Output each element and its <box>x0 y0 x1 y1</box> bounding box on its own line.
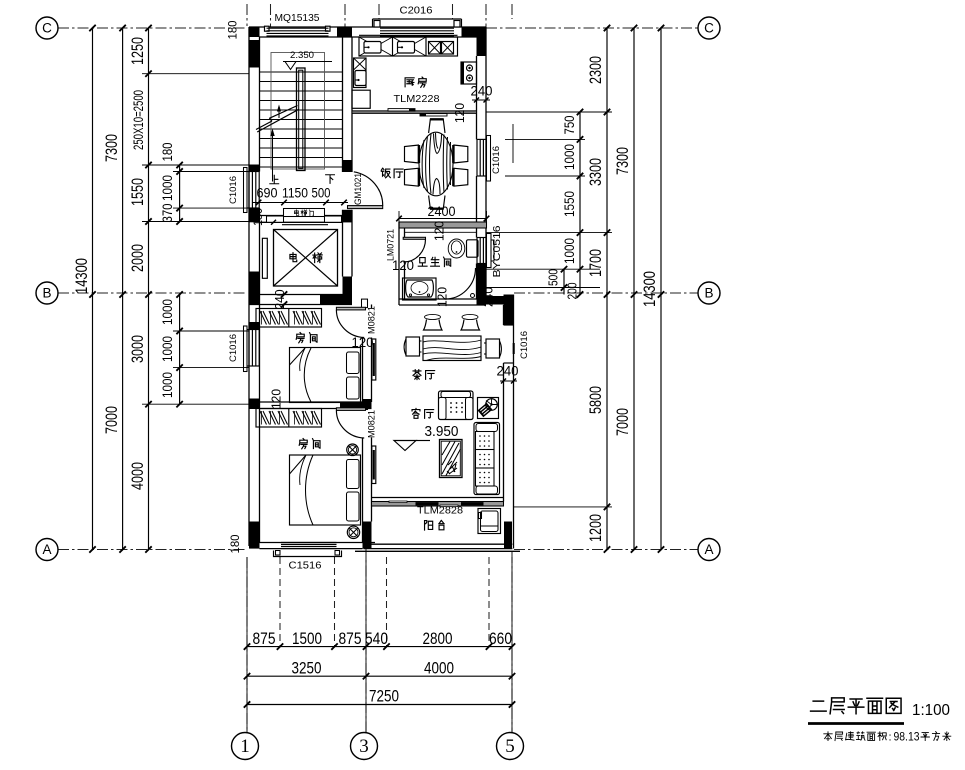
svg-text:5: 5 <box>505 736 515 757</box>
svg-text:TLM2228: TLM2228 <box>394 93 440 105</box>
svg-text:875: 875 <box>339 630 362 648</box>
svg-text:MQ15135: MQ15135 <box>275 12 320 24</box>
svg-text:C1516: C1516 <box>289 560 322 572</box>
svg-text:C: C <box>704 21 714 36</box>
svg-text:120: 120 <box>436 287 450 307</box>
svg-text:875: 875 <box>253 630 276 648</box>
svg-text:2000: 2000 <box>128 244 147 272</box>
svg-text:180: 180 <box>159 142 175 161</box>
svg-text:500: 500 <box>546 269 561 286</box>
svg-text:3000: 3000 <box>128 335 147 363</box>
svg-text:C1016: C1016 <box>228 176 239 204</box>
svg-text:120: 120 <box>392 258 414 273</box>
svg-text:1000: 1000 <box>159 336 175 362</box>
svg-text:180: 180 <box>253 208 265 226</box>
svg-text:B: B <box>42 286 51 301</box>
svg-text:370: 370 <box>159 203 175 222</box>
svg-text:1550: 1550 <box>128 178 147 206</box>
svg-text:1550: 1550 <box>561 191 577 217</box>
svg-text:2300: 2300 <box>586 56 605 84</box>
svg-text:240: 240 <box>497 364 519 379</box>
svg-text:750: 750 <box>561 115 577 134</box>
svg-text:200: 200 <box>565 283 580 300</box>
svg-text:1150: 1150 <box>282 186 308 201</box>
svg-text:1500: 1500 <box>292 630 322 648</box>
svg-text:7250: 7250 <box>369 688 399 706</box>
svg-text:540: 540 <box>365 630 388 648</box>
svg-text:C: C <box>42 21 52 36</box>
svg-text:C1016: C1016 <box>491 146 502 174</box>
svg-text:1200: 1200 <box>586 514 605 542</box>
svg-text:2800: 2800 <box>423 630 453 648</box>
svg-text:7300: 7300 <box>102 134 121 162</box>
svg-text:1000: 1000 <box>159 175 175 201</box>
svg-text:7000: 7000 <box>102 406 121 434</box>
svg-text:240: 240 <box>482 287 496 307</box>
svg-text:7000: 7000 <box>613 408 632 436</box>
svg-text:4000: 4000 <box>128 462 147 490</box>
svg-text:14300: 14300 <box>72 258 91 294</box>
svg-text:120: 120 <box>352 335 374 350</box>
svg-text:1000: 1000 <box>159 299 175 325</box>
svg-text:1:100: 1:100 <box>912 702 950 719</box>
svg-text:A: A <box>704 542 713 557</box>
svg-text:3250: 3250 <box>292 660 322 678</box>
svg-text::: : <box>888 732 891 744</box>
svg-text:180: 180 <box>226 20 240 39</box>
svg-text:4000: 4000 <box>424 660 454 678</box>
svg-text:690: 690 <box>257 186 278 201</box>
svg-text:250X10=2500: 250X10=2500 <box>130 90 146 150</box>
svg-text:180: 180 <box>228 534 242 553</box>
svg-text:120: 120 <box>453 103 467 123</box>
svg-text:BYC0516: BYC0516 <box>491 225 503 277</box>
svg-text:660: 660 <box>489 630 512 648</box>
svg-text:1250: 1250 <box>128 37 147 65</box>
svg-text:7300: 7300 <box>613 147 632 175</box>
svg-text:1000: 1000 <box>561 144 577 170</box>
svg-text:120: 120 <box>433 221 447 241</box>
svg-text:1000: 1000 <box>561 238 577 264</box>
svg-text:C2016: C2016 <box>400 5 433 17</box>
svg-text:1000: 1000 <box>159 372 175 398</box>
svg-text:A: A <box>42 542 51 557</box>
svg-text:120: 120 <box>270 389 284 409</box>
svg-text:3.950: 3.950 <box>425 424 459 440</box>
svg-text:3: 3 <box>359 736 369 757</box>
svg-text:C1016: C1016 <box>228 334 239 362</box>
svg-text:GM1021: GM1021 <box>353 173 364 205</box>
svg-text:500: 500 <box>312 186 331 201</box>
svg-text:B: B <box>704 286 713 301</box>
svg-text:LM0721: LM0721 <box>386 229 397 261</box>
svg-text:5800: 5800 <box>586 386 605 414</box>
svg-text:1700: 1700 <box>586 249 605 277</box>
svg-text:2.350: 2.350 <box>290 50 314 61</box>
svg-text:2400: 2400 <box>428 204 456 219</box>
svg-text:3300: 3300 <box>586 158 605 186</box>
svg-text:TLM2828: TLM2828 <box>417 505 463 517</box>
svg-text:14300: 14300 <box>640 271 659 307</box>
svg-text:1: 1 <box>240 736 250 757</box>
svg-text:M0821: M0821 <box>367 410 378 438</box>
svg-text:C1016: C1016 <box>519 331 530 359</box>
svg-text:98.13: 98.13 <box>894 730 920 744</box>
svg-text:240: 240 <box>471 84 493 99</box>
svg-text:M0821: M0821 <box>367 306 378 334</box>
